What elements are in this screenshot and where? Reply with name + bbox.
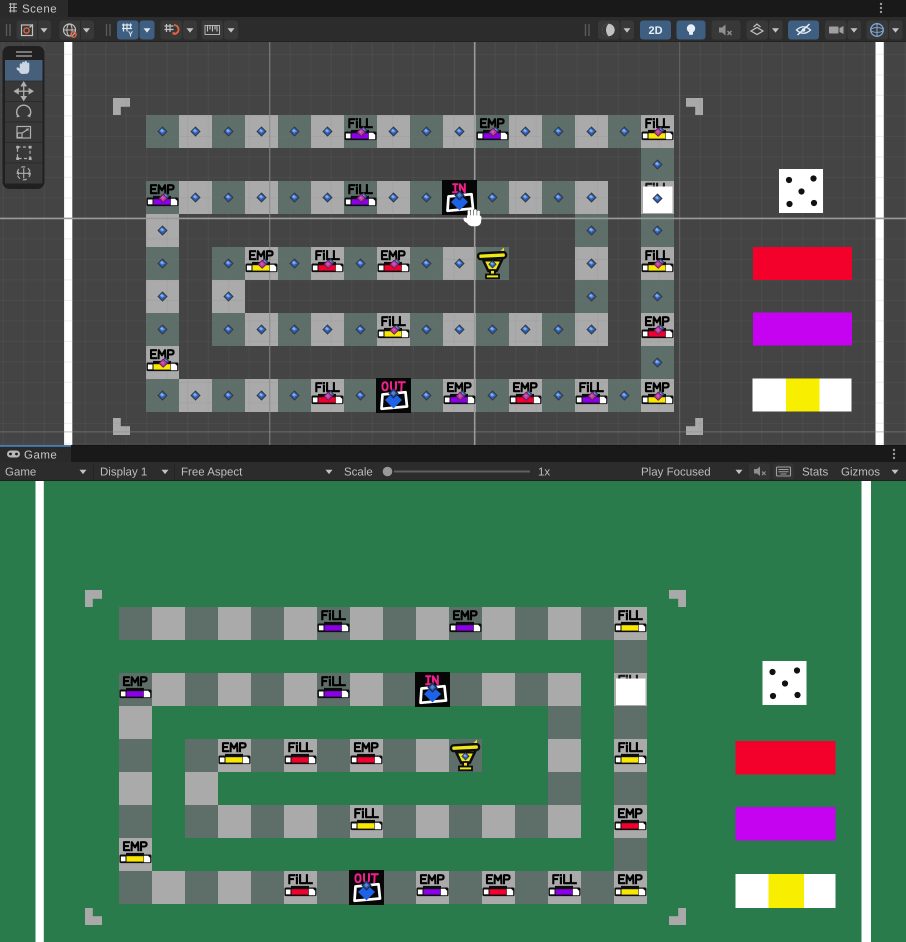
svg-text:2D: 2D [648,25,662,37]
svg-text:1x: 1x [538,467,550,479]
svg-text:Scale: Scale [344,467,373,479]
svg-text:Stats: Stats [802,467,828,479]
svg-text:Game: Game [24,450,57,462]
svg-text:Scene: Scene [22,4,57,16]
svg-text:Y: Y [128,30,133,39]
svg-text:Gizmos: Gizmos [841,467,880,479]
svg-text:Game: Game [5,467,36,479]
svg-text:Free Aspect: Free Aspect [181,467,243,479]
svg-text:Display 1: Display 1 [100,467,147,479]
svg-text:Play Focused: Play Focused [641,467,711,479]
